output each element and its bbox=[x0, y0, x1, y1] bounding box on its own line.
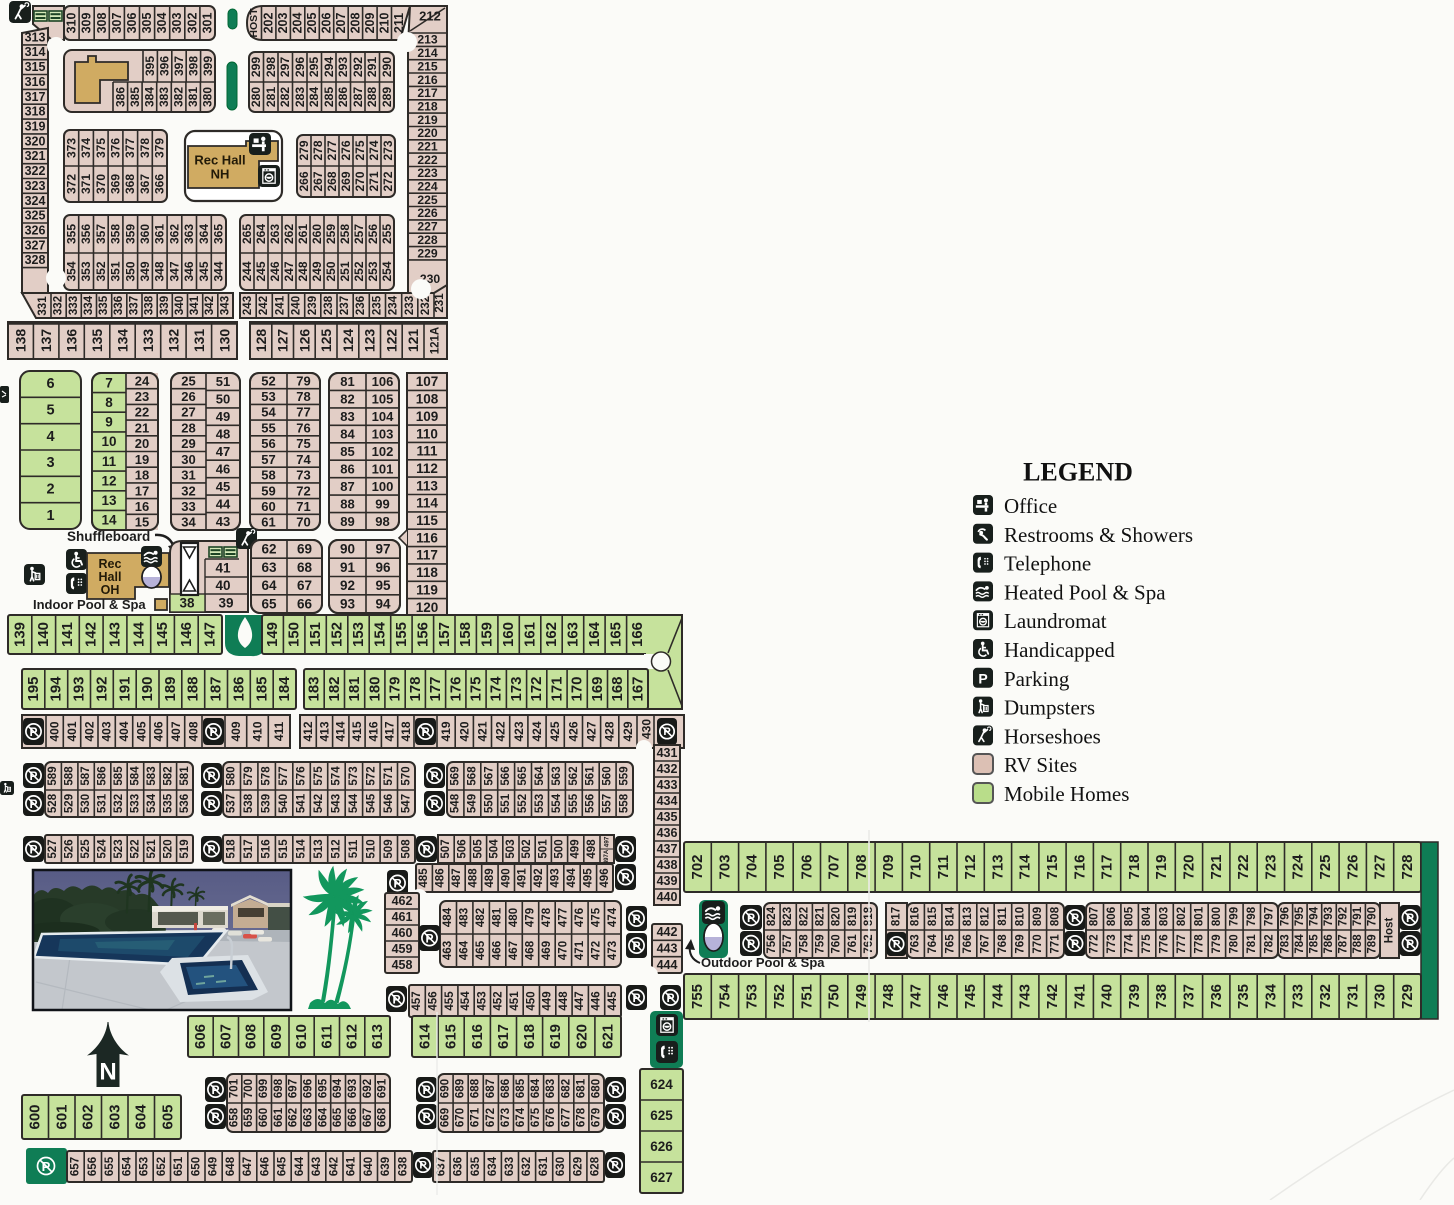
svg-text:513: 513 bbox=[313, 839, 325, 858]
svg-text:350: 350 bbox=[123, 261, 137, 281]
svg-text:225: 225 bbox=[417, 193, 438, 207]
svg-text:565: 565 bbox=[517, 766, 529, 786]
svg-text:33: 33 bbox=[181, 499, 195, 514]
svg-text:645: 645 bbox=[277, 1156, 289, 1176]
svg-text:104: 104 bbox=[372, 409, 394, 424]
svg-text:643: 643 bbox=[311, 1157, 323, 1176]
svg-text:633: 633 bbox=[504, 1157, 516, 1176]
svg-text:710: 710 bbox=[908, 854, 925, 879]
svg-text:613: 613 bbox=[369, 1024, 386, 1049]
svg-text:582: 582 bbox=[162, 766, 174, 785]
svg-text:Dumpsters: Dumpsters bbox=[1004, 696, 1095, 720]
svg-text:788: 788 bbox=[1352, 934, 1364, 954]
svg-text:5: 5 bbox=[46, 403, 54, 419]
svg-text:351: 351 bbox=[109, 261, 123, 281]
svg-text:418: 418 bbox=[399, 721, 413, 741]
svg-text:773: 773 bbox=[1106, 934, 1118, 953]
svg-text:276: 276 bbox=[339, 140, 353, 160]
svg-text:611: 611 bbox=[318, 1024, 335, 1048]
svg-text:182: 182 bbox=[326, 676, 343, 701]
svg-text:92: 92 bbox=[340, 578, 355, 593]
svg-text:177: 177 bbox=[427, 676, 444, 701]
svg-text:379: 379 bbox=[153, 138, 167, 158]
svg-text:2: 2 bbox=[46, 482, 54, 498]
svg-text:171: 171 bbox=[548, 676, 565, 701]
svg-text:796: 796 bbox=[1279, 907, 1291, 926]
svg-text:367: 367 bbox=[138, 174, 152, 194]
svg-text:681: 681 bbox=[575, 1078, 587, 1098]
svg-text:775: 775 bbox=[1141, 934, 1153, 954]
svg-text:180: 180 bbox=[366, 676, 383, 701]
svg-text:332: 332 bbox=[53, 296, 65, 315]
svg-text:648: 648 bbox=[225, 1156, 237, 1176]
svg-text:671: 671 bbox=[470, 1107, 482, 1127]
svg-text:793: 793 bbox=[1323, 907, 1335, 926]
svg-text:14: 14 bbox=[101, 513, 117, 528]
svg-text:190: 190 bbox=[139, 676, 156, 701]
svg-text:188: 188 bbox=[185, 676, 202, 701]
svg-text:628: 628 bbox=[590, 1156, 602, 1176]
svg-text:518: 518 bbox=[226, 839, 238, 859]
svg-text:482: 482 bbox=[475, 908, 487, 927]
svg-text:741: 741 bbox=[1071, 984, 1088, 1009]
svg-text:320: 320 bbox=[25, 134, 46, 148]
svg-text:378: 378 bbox=[138, 138, 152, 158]
svg-text:427: 427 bbox=[585, 721, 599, 741]
svg-text:558: 558 bbox=[619, 793, 631, 813]
svg-text:461: 461 bbox=[392, 910, 413, 924]
svg-text:437: 437 bbox=[657, 842, 678, 856]
svg-text:689: 689 bbox=[455, 1079, 467, 1098]
svg-text:342: 342 bbox=[204, 296, 216, 315]
svg-text:763: 763 bbox=[910, 934, 922, 953]
svg-text:606: 606 bbox=[192, 1024, 209, 1049]
svg-text:395: 395 bbox=[143, 56, 157, 76]
svg-text:550: 550 bbox=[483, 794, 495, 813]
svg-text:220: 220 bbox=[417, 126, 438, 140]
svg-text:456: 456 bbox=[428, 991, 440, 1010]
svg-text:84: 84 bbox=[340, 427, 355, 442]
svg-text:527: 527 bbox=[47, 839, 59, 858]
svg-text:561: 561 bbox=[585, 766, 597, 786]
svg-text:222: 222 bbox=[417, 153, 438, 167]
svg-text:154: 154 bbox=[371, 621, 388, 647]
svg-text:531: 531 bbox=[97, 793, 109, 813]
svg-text:386: 386 bbox=[113, 87, 127, 107]
svg-text:797: 797 bbox=[1263, 907, 1275, 926]
svg-text:339: 339 bbox=[159, 296, 171, 315]
svg-text:760: 760 bbox=[831, 934, 843, 953]
svg-text:572: 572 bbox=[365, 766, 377, 785]
svg-text:322: 322 bbox=[25, 164, 46, 178]
svg-text:231: 231 bbox=[434, 293, 446, 313]
svg-text:337: 337 bbox=[128, 296, 140, 315]
svg-text:Heated Pool & Spa: Heated Pool & Spa bbox=[1004, 580, 1166, 604]
svg-text:532: 532 bbox=[113, 794, 125, 813]
svg-text:542: 542 bbox=[313, 794, 325, 813]
svg-text:705: 705 bbox=[771, 854, 788, 879]
svg-text:612: 612 bbox=[344, 1024, 361, 1049]
svg-text:644: 644 bbox=[294, 1156, 306, 1176]
svg-text:141: 141 bbox=[59, 622, 76, 647]
svg-text:326: 326 bbox=[25, 223, 46, 237]
svg-text:149: 149 bbox=[264, 622, 281, 647]
svg-text:453: 453 bbox=[476, 991, 488, 1010]
svg-text:514: 514 bbox=[296, 839, 308, 859]
svg-text:246: 246 bbox=[268, 261, 282, 281]
svg-text:663: 663 bbox=[303, 1108, 315, 1127]
svg-text:726: 726 bbox=[1344, 854, 1361, 879]
svg-text:256: 256 bbox=[366, 224, 380, 244]
svg-text:602: 602 bbox=[80, 1104, 97, 1129]
svg-text:116: 116 bbox=[416, 530, 438, 545]
svg-text:39: 39 bbox=[218, 596, 233, 611]
svg-text:13: 13 bbox=[101, 493, 117, 508]
svg-text:769: 769 bbox=[1014, 934, 1026, 953]
svg-text:264: 264 bbox=[254, 224, 268, 244]
svg-text:490: 490 bbox=[500, 868, 512, 887]
svg-text:548: 548 bbox=[450, 793, 462, 813]
svg-text:25: 25 bbox=[181, 373, 195, 388]
svg-text:Parking: Parking bbox=[1004, 667, 1070, 691]
svg-text:223: 223 bbox=[417, 166, 438, 180]
svg-text:291: 291 bbox=[365, 57, 379, 78]
svg-text:57: 57 bbox=[261, 452, 275, 467]
svg-text:491: 491 bbox=[517, 868, 529, 888]
svg-text:771: 771 bbox=[1049, 934, 1061, 954]
svg-text:538: 538 bbox=[243, 793, 255, 813]
svg-text:319: 319 bbox=[25, 120, 46, 134]
svg-text:109: 109 bbox=[416, 409, 439, 424]
svg-text:281: 281 bbox=[264, 87, 278, 108]
svg-text:511: 511 bbox=[348, 839, 360, 858]
svg-text:820: 820 bbox=[831, 907, 843, 926]
svg-text:475: 475 bbox=[590, 907, 602, 927]
svg-text:287: 287 bbox=[351, 87, 365, 108]
svg-text:48: 48 bbox=[216, 427, 230, 442]
svg-text:344: 344 bbox=[212, 261, 226, 281]
svg-text:506: 506 bbox=[456, 839, 468, 858]
svg-text:89: 89 bbox=[340, 514, 354, 529]
svg-text:505: 505 bbox=[473, 839, 485, 859]
svg-text:743: 743 bbox=[1017, 984, 1034, 1009]
svg-text:737: 737 bbox=[1181, 984, 1198, 1009]
svg-text:428: 428 bbox=[603, 721, 617, 741]
svg-text:74: 74 bbox=[296, 452, 311, 467]
svg-text:744: 744 bbox=[989, 983, 1006, 1009]
svg-text:187: 187 bbox=[208, 676, 225, 701]
svg-text:552: 552 bbox=[517, 794, 529, 813]
svg-text:658: 658 bbox=[228, 1107, 240, 1127]
svg-text:494: 494 bbox=[566, 868, 578, 888]
svg-text:547: 547 bbox=[400, 794, 412, 813]
svg-text:651: 651 bbox=[173, 1156, 185, 1176]
svg-text:304: 304 bbox=[155, 13, 169, 34]
svg-text:768: 768 bbox=[997, 934, 1009, 954]
svg-text:34: 34 bbox=[181, 515, 196, 530]
svg-text:546: 546 bbox=[383, 794, 395, 813]
svg-text:140: 140 bbox=[35, 622, 52, 647]
svg-text:121: 121 bbox=[405, 329, 421, 353]
svg-text:32: 32 bbox=[181, 483, 195, 498]
svg-text:554: 554 bbox=[551, 793, 563, 813]
svg-text:359: 359 bbox=[123, 224, 137, 244]
svg-text:785: 785 bbox=[1308, 934, 1320, 954]
svg-text:285: 285 bbox=[322, 87, 336, 108]
svg-text:108: 108 bbox=[416, 392, 439, 407]
svg-text:262: 262 bbox=[282, 224, 296, 244]
svg-text:358: 358 bbox=[109, 224, 123, 244]
svg-text:526: 526 bbox=[64, 839, 76, 858]
svg-text:228: 228 bbox=[417, 233, 438, 247]
svg-text:764: 764 bbox=[927, 934, 939, 954]
svg-text:99: 99 bbox=[375, 496, 389, 511]
svg-text:673: 673 bbox=[500, 1108, 512, 1127]
svg-text:466: 466 bbox=[492, 941, 504, 960]
svg-text:123: 123 bbox=[362, 329, 378, 353]
svg-text:488: 488 bbox=[468, 868, 480, 888]
svg-text:259: 259 bbox=[324, 224, 338, 244]
svg-text:271: 271 bbox=[367, 171, 381, 191]
svg-text:278: 278 bbox=[311, 140, 325, 160]
svg-text:443: 443 bbox=[657, 942, 678, 956]
svg-text:434: 434 bbox=[657, 794, 678, 808]
svg-text:675: 675 bbox=[530, 1107, 542, 1127]
svg-text:81: 81 bbox=[340, 374, 354, 389]
svg-text:729: 729 bbox=[1399, 984, 1416, 1009]
svg-text:758: 758 bbox=[798, 934, 810, 954]
svg-text:21: 21 bbox=[135, 421, 149, 436]
svg-text:686: 686 bbox=[500, 1079, 512, 1098]
svg-text:660: 660 bbox=[258, 1108, 270, 1127]
svg-text:241: 241 bbox=[274, 295, 286, 315]
svg-text:576: 576 bbox=[296, 766, 308, 785]
svg-text:817: 817 bbox=[891, 907, 903, 926]
svg-text:449: 449 bbox=[542, 991, 554, 1010]
svg-text:808: 808 bbox=[1049, 906, 1061, 926]
svg-text:Rec: Rec bbox=[99, 557, 122, 571]
svg-text:756: 756 bbox=[766, 934, 778, 953]
svg-text:382: 382 bbox=[172, 87, 186, 107]
svg-text:436: 436 bbox=[657, 826, 678, 840]
svg-text:277: 277 bbox=[325, 140, 339, 160]
svg-text:288: 288 bbox=[365, 87, 379, 108]
svg-text:331: 331 bbox=[37, 296, 49, 316]
svg-text:362: 362 bbox=[168, 224, 182, 244]
svg-text:Mobile Homes: Mobile Homes bbox=[1004, 782, 1129, 806]
svg-text:162: 162 bbox=[543, 622, 560, 647]
svg-text:786: 786 bbox=[1323, 934, 1335, 953]
svg-text:571: 571 bbox=[383, 766, 395, 786]
svg-text:139: 139 bbox=[11, 622, 28, 647]
svg-text:345: 345 bbox=[197, 261, 211, 281]
svg-text:Hall: Hall bbox=[99, 570, 122, 584]
svg-text:798: 798 bbox=[1246, 906, 1258, 926]
svg-text:519: 519 bbox=[179, 839, 191, 858]
svg-text:249: 249 bbox=[310, 261, 324, 281]
svg-text:636: 636 bbox=[453, 1157, 465, 1176]
svg-text:63: 63 bbox=[261, 560, 277, 575]
svg-text:700: 700 bbox=[243, 1079, 255, 1098]
svg-text:718: 718 bbox=[1126, 854, 1143, 879]
svg-text:235: 235 bbox=[371, 295, 383, 315]
svg-text:226: 226 bbox=[417, 206, 438, 220]
svg-text:750: 750 bbox=[826, 984, 843, 1009]
svg-text:212: 212 bbox=[419, 9, 441, 24]
svg-text:783: 783 bbox=[1279, 934, 1291, 953]
svg-text:72: 72 bbox=[296, 483, 310, 498]
svg-text:202: 202 bbox=[262, 13, 276, 34]
svg-text:734: 734 bbox=[1262, 983, 1279, 1009]
svg-text:280: 280 bbox=[249, 87, 263, 108]
svg-text:709: 709 bbox=[880, 854, 897, 879]
svg-text:803: 803 bbox=[1159, 907, 1171, 926]
svg-text:736: 736 bbox=[1208, 984, 1225, 1009]
svg-text:502: 502 bbox=[521, 839, 533, 858]
svg-text:703: 703 bbox=[716, 854, 733, 879]
svg-text:553: 553 bbox=[534, 794, 546, 813]
svg-text:496: 496 bbox=[599, 868, 611, 887]
svg-text:356: 356 bbox=[79, 224, 93, 244]
svg-text:157: 157 bbox=[436, 622, 453, 647]
svg-text:409: 409 bbox=[229, 721, 243, 741]
svg-text:712: 712 bbox=[962, 854, 979, 879]
svg-text:807: 807 bbox=[1089, 907, 1101, 926]
svg-text:100: 100 bbox=[372, 479, 394, 494]
svg-text:787: 787 bbox=[1338, 934, 1350, 953]
svg-text:112: 112 bbox=[416, 461, 438, 476]
svg-text:448: 448 bbox=[558, 991, 570, 1011]
svg-text:237: 237 bbox=[339, 296, 351, 315]
svg-text:575: 575 bbox=[313, 766, 325, 786]
svg-text:301: 301 bbox=[200, 13, 214, 34]
svg-text:66: 66 bbox=[297, 596, 313, 611]
svg-text:805: 805 bbox=[1124, 906, 1136, 926]
svg-text:239: 239 bbox=[307, 296, 319, 315]
svg-text:410: 410 bbox=[251, 721, 265, 741]
svg-text:213: 213 bbox=[417, 33, 438, 47]
svg-text:292: 292 bbox=[351, 57, 365, 78]
svg-text:722: 722 bbox=[1235, 854, 1252, 879]
svg-text:563: 563 bbox=[551, 766, 563, 785]
svg-text:517: 517 bbox=[243, 839, 255, 858]
svg-text:642: 642 bbox=[328, 1157, 340, 1176]
svg-text:286: 286 bbox=[336, 87, 350, 108]
svg-text:247: 247 bbox=[282, 261, 296, 281]
svg-text:674: 674 bbox=[515, 1107, 527, 1127]
svg-text:420: 420 bbox=[457, 721, 471, 741]
svg-text:168: 168 bbox=[609, 676, 626, 701]
svg-text:536: 536 bbox=[179, 794, 191, 813]
svg-text:801: 801 bbox=[1194, 906, 1206, 926]
svg-text:533: 533 bbox=[129, 794, 141, 813]
svg-text:360: 360 bbox=[138, 224, 152, 244]
svg-text:27: 27 bbox=[181, 405, 195, 420]
svg-text:83: 83 bbox=[340, 409, 354, 424]
svg-text:193: 193 bbox=[71, 676, 88, 701]
svg-text:480: 480 bbox=[508, 908, 520, 927]
svg-text:766: 766 bbox=[962, 934, 974, 953]
svg-text:452: 452 bbox=[493, 991, 505, 1010]
svg-text:631: 631 bbox=[538, 1156, 550, 1176]
svg-text:696: 696 bbox=[303, 1079, 315, 1098]
svg-text:497A: 497A bbox=[604, 849, 610, 864]
svg-text:486: 486 bbox=[435, 868, 447, 887]
svg-text:432: 432 bbox=[657, 762, 678, 776]
svg-text:815: 815 bbox=[927, 906, 939, 926]
svg-text:617: 617 bbox=[495, 1024, 512, 1049]
svg-text:46: 46 bbox=[216, 461, 230, 476]
svg-text:178: 178 bbox=[407, 676, 424, 701]
svg-text:136: 136 bbox=[64, 329, 80, 353]
svg-text:460: 460 bbox=[392, 926, 413, 940]
svg-text:725: 725 bbox=[1317, 854, 1334, 879]
svg-text:134: 134 bbox=[115, 329, 131, 353]
svg-text:340: 340 bbox=[174, 296, 186, 315]
svg-text:469: 469 bbox=[541, 941, 553, 960]
svg-text:698: 698 bbox=[273, 1078, 285, 1098]
svg-text:Shuffleboard: Shuffleboard bbox=[67, 529, 150, 544]
svg-text:474: 474 bbox=[607, 907, 619, 927]
svg-text:306: 306 bbox=[125, 13, 139, 34]
svg-text:12: 12 bbox=[101, 473, 116, 488]
svg-text:106: 106 bbox=[372, 374, 394, 389]
svg-text:24: 24 bbox=[135, 373, 150, 388]
svg-text:425: 425 bbox=[548, 721, 562, 741]
svg-text:444: 444 bbox=[657, 958, 678, 972]
svg-text:283: 283 bbox=[293, 87, 307, 108]
svg-text:439: 439 bbox=[657, 874, 678, 888]
svg-text:175: 175 bbox=[468, 676, 485, 701]
svg-text:105: 105 bbox=[372, 392, 394, 407]
svg-text:790: 790 bbox=[1367, 907, 1379, 926]
svg-text:91: 91 bbox=[340, 560, 356, 575]
svg-text:690: 690 bbox=[440, 1079, 452, 1098]
svg-text:400: 400 bbox=[48, 721, 62, 741]
svg-text:317: 317 bbox=[25, 90, 46, 104]
svg-text:28: 28 bbox=[181, 421, 195, 436]
svg-text:732: 732 bbox=[1317, 984, 1334, 1009]
svg-text:9: 9 bbox=[105, 415, 113, 430]
svg-text:551: 551 bbox=[500, 793, 512, 813]
svg-text:298: 298 bbox=[264, 57, 278, 78]
svg-text:284: 284 bbox=[307, 87, 321, 108]
svg-text:509: 509 bbox=[383, 839, 395, 858]
svg-text:263: 263 bbox=[268, 224, 282, 244]
svg-text:429: 429 bbox=[621, 721, 635, 741]
svg-text:158: 158 bbox=[457, 622, 474, 647]
svg-text:205: 205 bbox=[305, 13, 319, 34]
svg-text:627: 627 bbox=[650, 1170, 673, 1185]
svg-text:630: 630 bbox=[555, 1157, 567, 1176]
svg-text:61: 61 bbox=[261, 515, 275, 530]
svg-text:321: 321 bbox=[25, 149, 46, 163]
svg-text:328: 328 bbox=[25, 253, 46, 267]
svg-text:43: 43 bbox=[216, 514, 230, 529]
svg-text:370: 370 bbox=[94, 174, 108, 194]
svg-text:442: 442 bbox=[657, 925, 678, 939]
svg-text:248: 248 bbox=[296, 261, 310, 281]
svg-text:607: 607 bbox=[217, 1024, 234, 1049]
svg-text:464: 464 bbox=[459, 940, 471, 960]
svg-text:215: 215 bbox=[417, 59, 438, 73]
svg-text:194: 194 bbox=[48, 676, 65, 702]
svg-text:195: 195 bbox=[25, 676, 42, 701]
svg-text:11: 11 bbox=[102, 454, 117, 469]
svg-text:603: 603 bbox=[106, 1104, 123, 1129]
svg-text:719: 719 bbox=[1153, 854, 1170, 879]
svg-text:309: 309 bbox=[80, 13, 94, 34]
